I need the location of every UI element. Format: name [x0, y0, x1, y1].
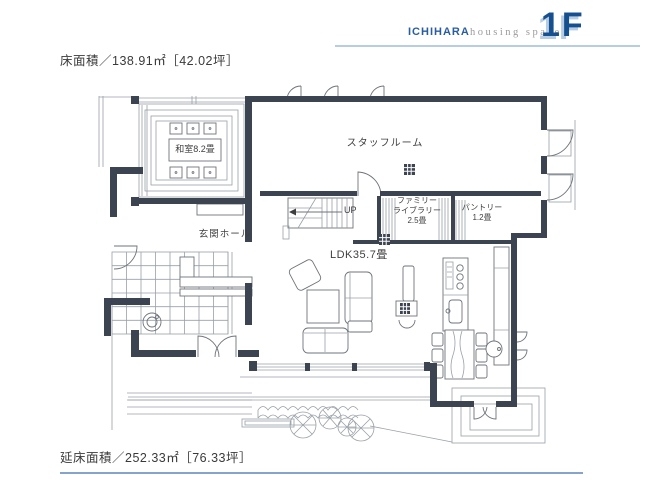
staff-door-swing	[358, 172, 381, 196]
floor-area-text: 床面積／138.91㎡［42.02坪］	[60, 50, 239, 69]
family-library-line2: ライブラリー	[393, 206, 441, 215]
room-label-ldk: LDK35.7畳	[330, 249, 420, 263]
tv-board	[396, 266, 417, 328]
pantry-name: パントリー	[462, 203, 502, 212]
up-arrow	[289, 209, 296, 216]
stairs-up-label: UP	[344, 205, 368, 216]
footer-rule	[60, 472, 583, 474]
pantry-size: 1.2畳	[472, 213, 491, 222]
room-label-staff-room: スタッフルーム	[340, 138, 430, 151]
family-library-line1: ファミリー	[397, 196, 437, 205]
family-library-size: 2.5畳	[407, 216, 426, 225]
shoe-counter	[180, 257, 252, 296]
kitchen-island	[443, 258, 468, 331]
entrance-double-door	[198, 336, 236, 357]
header-rule	[335, 45, 640, 47]
wall-counter	[486, 247, 527, 365]
room-label-family-library: ファミリー ライブラリー 2.5畳	[379, 196, 455, 226]
sofa-set	[288, 258, 372, 353]
garden	[242, 388, 545, 443]
total-floor-area-text: 延床面積／252.33㎡［76.33坪］	[60, 447, 252, 466]
floor-plan-drawing	[0, 0, 649, 495]
garden-steps	[452, 388, 545, 443]
wash-basin	[143, 313, 161, 331]
right-exterior-doors	[547, 120, 575, 210]
room-label-washitsu: 和室8.2畳	[163, 144, 227, 155]
brand-name: ICHIHARA	[408, 26, 470, 38]
room-label-entrance-hall: 玄関ホール	[194, 229, 256, 241]
floor-number: 1F	[541, 6, 585, 45]
floorplan-page: ICHIHARA housing space 1F 床面積／138.91㎡［42…	[0, 0, 649, 495]
tree-symbols	[290, 407, 374, 441]
dining-table	[432, 330, 487, 379]
room-label-pantry: パントリー 1.2畳	[452, 203, 512, 223]
stairs	[283, 198, 353, 239]
